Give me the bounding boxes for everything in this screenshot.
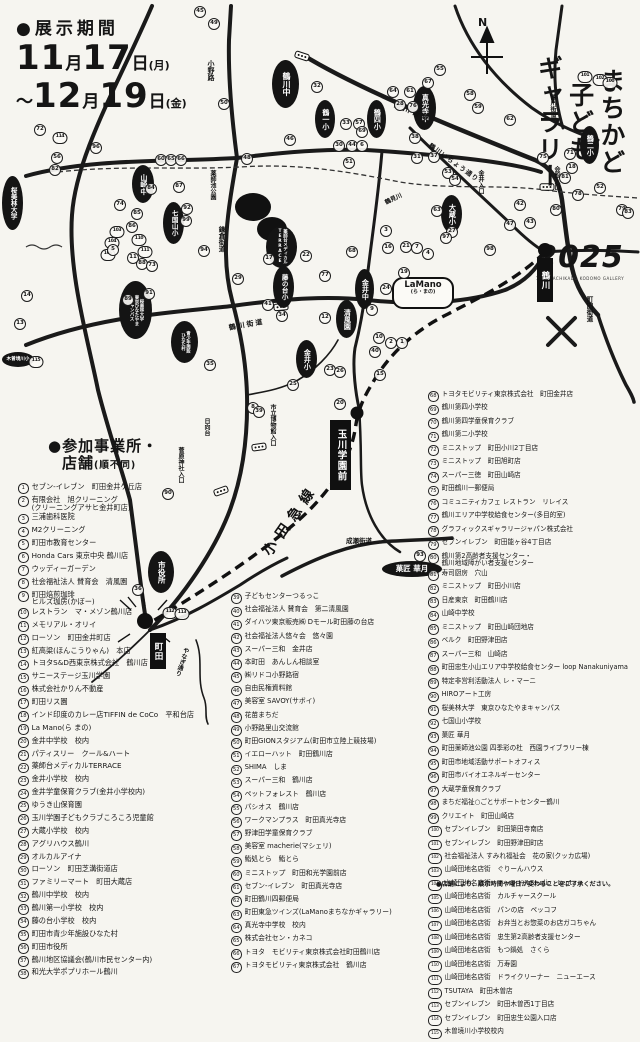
map-marker-63: 63	[431, 205, 443, 217]
road-label: 市立博物館入口	[268, 404, 277, 446]
compass-north-label: N	[478, 16, 487, 29]
list-item: 36町田市役所	[18, 943, 216, 954]
item-text: 町田市地域活動サポートオフィス	[442, 759, 541, 766]
list-item: 16株式会社かりん不動産	[18, 685, 216, 696]
list-item: 53スーパー三和 鶴川店	[231, 777, 427, 788]
item-text: 鶴川第四学童保育クラブ	[442, 418, 515, 425]
list-item: 70鶴川第四学童保育クラブ	[428, 418, 630, 429]
map-landmark-oval: 鶴四小	[367, 100, 386, 138]
list-item: 71鶴川第二小学校	[428, 431, 630, 442]
list-item: 31ファミリーマート 町田大蔵店	[18, 878, 216, 889]
list-item: 42社会福祉法人悠々会 悠々園	[231, 633, 427, 644]
road-label: 成瀬街道	[346, 535, 372, 545]
list-item: 60ミニストップ 町田和光学園前店	[231, 870, 427, 881]
item-text: スーパー三和 鶴川店	[245, 777, 313, 784]
list-item: 110山崎団地名店街 万寿園	[428, 961, 630, 972]
item-text: 鶴川地区協議会(鶴川市民センター内)	[32, 956, 153, 964]
map-marker-96: 96	[90, 142, 102, 154]
list-item: 47美容室 SAVOY(サボイ)	[231, 698, 427, 709]
item-text: セブンイレブン 町田野津田町店	[445, 840, 544, 847]
map-marker-73: 73	[146, 260, 158, 272]
item-text: サニーステージ玉川学園	[32, 672, 111, 680]
item-number-badge: 84	[428, 611, 439, 622]
item-text: 山崎団地名店街 カルチャースクール	[445, 893, 557, 900]
list-item: 11メモリアル・オリイ	[18, 621, 216, 632]
item-text: SHIMA しま	[245, 764, 287, 771]
item-number-badge: 21	[18, 750, 29, 761]
map-marker-72: 72	[34, 124, 46, 136]
map-marker-6: 6	[356, 140, 368, 152]
item-number-badge: 103	[428, 867, 442, 878]
item-number-badge: 61	[231, 883, 242, 894]
road-label: 薬師池公園	[208, 170, 217, 200]
item-text: 花苗まちだ	[245, 712, 279, 719]
list-item: 76コミュニティカフェ レストラン リレイス	[428, 499, 630, 510]
map-marker-7: 7	[411, 242, 423, 254]
item-number-badge: 12	[18, 634, 29, 645]
map-marker-46: 46	[284, 134, 296, 146]
map-marker-27: 27	[446, 226, 458, 238]
map-marker-88: 88	[136, 258, 148, 270]
item-text: 金井小学校 校内	[32, 775, 90, 783]
item-text: セブン-イレブン 町田金井ケ丘店	[32, 483, 142, 491]
map-marker-76: 76	[407, 101, 419, 113]
list-item: 84山崎中学校	[428, 610, 630, 621]
item-text: ミニストップ 町田小川店	[442, 583, 521, 590]
item-text: 町田リス園	[32, 698, 68, 706]
item-number-badge: 73	[428, 459, 439, 470]
station-label: 玉川学園前	[330, 420, 351, 490]
item-text: インド印度のカレー店TIFFIN de CoCo 平和台店	[32, 711, 194, 719]
item-text: 町田市教育センター	[32, 539, 97, 547]
item-number-badge: 80	[428, 553, 439, 564]
map-landmark-oval: 桜美林大学 東京ひなたやま キャンパス	[119, 281, 152, 339]
list-item: 55パシオス 鶴川店	[231, 804, 427, 815]
item-text: ミニストップ 町田山崎団地店	[442, 624, 534, 631]
road-label: 日向台	[202, 418, 211, 436]
list-item: 101セブンイレブン 町田野津田町店	[428, 840, 630, 851]
list-item: 3三浦歯科医院	[18, 513, 216, 524]
item-text: 有限会社 旭クリーニング (クリーニングアサヒ金井町店)	[32, 496, 131, 512]
map-marker-47: 47	[504, 219, 516, 231]
map-marker-37: 37	[428, 151, 440, 163]
list-item: 9町田焙煎珈琲 ヒルズ珈房(かぼー)	[18, 591, 216, 607]
event-title-year: 2025	[528, 240, 632, 275]
map-marker-4: 4	[422, 248, 434, 260]
item-text: 美容室 macherie(マシェリ)	[245, 843, 332, 850]
item-number-badge: 85	[428, 624, 439, 635]
list-item: 74スーパー三徳 町田山崎店	[428, 472, 630, 483]
item-text: 社会福祉法人悠々会 悠々園	[245, 633, 333, 640]
map-marker-40: 40	[369, 346, 381, 358]
item-number-badge: 53	[231, 778, 242, 789]
map-marker-57: 57	[353, 118, 365, 130]
item-text: 鶴川第一小学校 校内	[32, 904, 104, 912]
list-item: 81寿司厨房 穴山	[428, 570, 630, 581]
map-marker-31: 31	[411, 152, 423, 164]
map-marker-53: 53	[442, 167, 454, 179]
list-item: 96町田市バイオエネルギーセンター	[428, 772, 630, 783]
item-number-badge: 58	[231, 844, 242, 855]
item-text: 和光大学ポプリホール鶴川	[32, 968, 118, 976]
item-number-badge: 76	[428, 499, 439, 510]
map-marker-51: 51	[343, 157, 355, 169]
map-landmark-oval: 青少年施設 ひなた村	[171, 321, 198, 363]
item-number-badge: 7	[18, 565, 29, 576]
item-number-badge: 109	[428, 948, 442, 959]
venue-list-column-1: 1セブン-イレブン 町田金井ケ丘店2有限会社 旭クリーニング (クリーニングアサ…	[18, 483, 216, 981]
item-text: 山崎団地名店街 万寿園	[445, 961, 518, 968]
map-marker-99: 99	[180, 215, 192, 227]
map-marker-65: 65	[165, 154, 177, 166]
list-item: 107山崎団地名店街 お弁当とお惣菜のお店ガコちゃん	[428, 920, 630, 931]
item-text: 紅高粱(ほんこうりゃん) 本店	[32, 647, 131, 655]
list-item: 114セブンイレブン 町田忠生公園入口店	[428, 1015, 630, 1026]
item-text: 子どもセンターつるっこ	[245, 593, 320, 600]
item-number-badge: 35	[18, 930, 29, 941]
item-number-badge: 107	[428, 921, 442, 932]
list-item: 100セブンイレブン 町田簗田寺南店	[428, 826, 630, 837]
list-item: 115木曽境川小学校校内	[428, 1028, 630, 1039]
map-landmark-oval: 鶴一小	[315, 100, 335, 138]
item-number-badge: 52	[231, 765, 242, 776]
map-landmark-oval: 金井中	[355, 269, 374, 309]
item-text: 真光寺中学校 校内	[245, 922, 306, 929]
list-item: 44本町田 あんしん相談室	[231, 659, 427, 670]
map-marker-10: 10	[373, 332, 385, 344]
list-item: 73ミニストップ 町田旭町店	[428, 458, 630, 469]
map-marker-17: 17	[263, 253, 275, 265]
item-number-badge: 93	[428, 732, 439, 743]
item-number-badge: 25	[18, 801, 29, 812]
map-marker-87: 87	[173, 181, 185, 193]
map-marker-13: 13	[14, 318, 26, 330]
item-number-badge: 8	[18, 578, 29, 589]
item-number-badge: 91	[428, 705, 439, 716]
item-number-badge: 99	[428, 813, 439, 824]
item-number-badge: 33	[18, 904, 29, 915]
list-item: 103山崎団地名店街 ぐりーんハウス	[428, 866, 630, 877]
item-text: 町田薬師池公園 四季彩の杜 西園ライブラリー棟	[442, 745, 589, 752]
item-text: 特定非営利活動法人 レ・マーニ	[442, 678, 536, 685]
list-item: 62町田鶴川四郵便局	[231, 896, 427, 907]
road-label: 菅原神社入口	[176, 447, 185, 483]
item-text: スーパー三和 山崎店	[442, 651, 508, 658]
item-text: オルカルアイナ	[32, 853, 82, 861]
map-marker-22: 22	[300, 250, 312, 262]
list-item: 83日産東京 町田鶴川店	[428, 597, 630, 608]
item-number-badge: 87	[428, 651, 439, 662]
list-item: 66トヨタ モビリティ東京株式会社町田鶴川店	[231, 949, 427, 960]
list-item: 113セブンイレブン 町田木曽西1丁目店	[428, 1001, 630, 1012]
map-marker-1: 1	[396, 337, 408, 349]
item-number-badge: 83	[428, 597, 439, 608]
item-text: 寿司厨房 穴山	[442, 570, 488, 577]
map-marker-98: 98	[484, 244, 496, 256]
item-number-badge: 1	[18, 483, 29, 494]
list-item: 75町田鶴川一郵便局	[428, 485, 630, 496]
event-title: まちかど 子ども ギャラリー 2025 18th MACHIKADO KODOM…	[528, 6, 632, 281]
map-marker-55: 55	[434, 64, 446, 76]
map-marker-85: 85	[131, 208, 143, 220]
item-number-badge: 89	[428, 678, 439, 689]
item-number-badge: 45	[231, 672, 242, 683]
item-number-badge: 100	[428, 826, 442, 837]
item-number-badge: 3	[18, 514, 29, 525]
item-number-badge: 74	[428, 472, 439, 483]
list-item: 78グラフィックスギャラリージャパン株式会社	[428, 526, 630, 537]
item-text: 薬師台メディカルTERRACE	[32, 762, 122, 770]
item-number-badge: 34	[18, 917, 29, 928]
road-label: 町田街道	[584, 296, 594, 322]
item-text: ダイハツ東京販売㈱ Dモール町田藤の台店	[245, 619, 375, 626]
item-number-badge: 75	[428, 486, 439, 497]
map-marker-91: 91	[143, 288, 155, 300]
item-text: ペットフォレスト 鶴川店	[245, 791, 327, 798]
item-text: 町田市役所	[32, 943, 68, 951]
item-number-badge: 36	[18, 943, 29, 954]
item-number-badge: 44	[231, 659, 242, 670]
item-number-badge: 19	[18, 724, 29, 735]
list-item: 5町田市教育センター	[18, 539, 216, 550]
item-number-badge: 57	[231, 830, 242, 841]
item-text: ミニストップ 町田小川2丁目店	[442, 445, 539, 452]
list-item: 67トヨタモビリティ東京株式会社 鶴川店	[231, 962, 427, 973]
item-number-badge: 39	[231, 593, 242, 604]
list-item: 12ローソン 町田金井町店	[18, 634, 216, 645]
list-item: 41ダイハツ東京販売㈱ Dモール町田藤の台店	[231, 619, 427, 630]
item-text: ファミリーマート 町田大蔵店	[32, 878, 133, 886]
item-number-badge: 72	[428, 445, 439, 456]
item-number-badge: 106	[428, 907, 442, 918]
exhibition-period: ●展示期間 11月17日(月) ～12月19日(金)	[16, 14, 316, 114]
item-text: 鶴川中学校 校内	[32, 891, 90, 899]
list-item: 38和光大学ポプリホール鶴川	[18, 968, 216, 979]
map-marker-41: 41	[262, 299, 274, 311]
item-number-badge: 38	[18, 969, 29, 980]
list-item: 54ペットフォレスト 鶴川店	[231, 791, 427, 802]
item-text: セブンイレブン 町田簗田寺南店	[445, 826, 544, 833]
item-text: 野津田学童保育クラブ	[245, 830, 313, 837]
map-marker-35: 35	[204, 359, 216, 371]
map-landmark-oval: 桜美林大学	[2, 176, 23, 230]
road-label: 鶴見川	[383, 190, 403, 206]
item-text: 藤の台小学校 校内	[32, 917, 97, 925]
item-text: スーパー三徳 町田山崎店	[442, 472, 521, 479]
item-number-badge: 15	[18, 673, 29, 684]
item-text: 町田鶴川一郵便局	[442, 485, 495, 492]
map-marker-64: 64	[387, 86, 399, 98]
event-title-text: まちかど 子ども ギャラリー	[533, 6, 627, 238]
map-landmark-oval: 金井小	[296, 340, 317, 378]
item-text: 鶴川第2高齢者支援センター・ 鶴川地域障がい者支援センター	[442, 553, 534, 568]
map-marker-110: 110	[132, 234, 147, 246]
item-number-badge: 49	[231, 725, 242, 736]
list-item: 46自由民権資料館	[231, 685, 427, 696]
item-text: 町田東急ツインズ(LaManoまちなかギャラリー)	[245, 909, 392, 916]
item-number-badge: 6	[18, 552, 29, 563]
item-text: 自由民権資料館	[245, 685, 293, 692]
item-number-badge: 28	[18, 840, 29, 851]
map-landmark-oval: 清風園	[336, 300, 357, 338]
list-item: 108山崎団地名店街 忠生第2高齢者支援センター	[428, 934, 630, 945]
item-number-badge: 27	[18, 827, 29, 838]
item-number-badge: 40	[231, 607, 242, 618]
item-text: セブンイレブン 町田忠生公園入口店	[445, 1015, 557, 1022]
map-marker-5: 5	[107, 244, 119, 256]
item-text: 町田市青少年施設ひなた村	[32, 930, 118, 938]
item-number-badge: 77	[428, 513, 439, 524]
item-text: グラフィックスギャラリージャパン株式会社	[442, 526, 573, 533]
list-item: 48花苗まちだ	[231, 712, 427, 723]
item-number-badge: 71	[428, 432, 439, 443]
item-text: 小野路里山交流館	[245, 725, 299, 732]
map-marker-61: 61	[404, 86, 416, 98]
item-number-badge: 115	[428, 1029, 442, 1040]
item-number-badge: 101	[428, 840, 442, 851]
item-number-badge: 82	[428, 584, 439, 595]
list-item: 106山崎団地名店街 パンの店 ペッコフ	[428, 907, 630, 918]
item-number-badge: 114	[428, 1015, 442, 1026]
item-text: スーパー三和 金井店	[245, 646, 313, 653]
item-number-badge: 64	[231, 923, 242, 934]
item-text: TSUTAYA 町田木曽店	[445, 988, 513, 995]
item-number-badge: 56	[231, 817, 242, 828]
item-number-badge: 14	[18, 660, 29, 671]
list-heading-line2: 店舗(順不同)	[62, 455, 158, 472]
list-item: 72ミニストップ 町田小川2丁目店	[428, 445, 630, 456]
map-marker-115: 115	[29, 356, 44, 368]
list-item: 87スーパー三和 山崎店	[428, 651, 630, 662]
list-item: 61セブン-イレブン 町田真光寺店	[231, 883, 427, 894]
item-number-badge: 16	[18, 686, 29, 697]
item-number-badge: 5	[18, 539, 29, 550]
item-number-badge: 95	[428, 759, 439, 770]
list-item: 109山崎団地名店街 もつ鍋処 さくら	[428, 947, 630, 958]
item-number-badge: 13	[18, 647, 29, 658]
list-item: 1セブン-イレブン 町田金井ケ丘店	[18, 483, 216, 494]
item-text: ㈱リドコ小野路宿	[245, 672, 299, 679]
item-text: セブンイレブン 町田能ヶ谷4丁目店	[442, 539, 552, 546]
item-text: 町田GIONスタジアム(町田市立陸上競技場)	[245, 738, 377, 745]
item-text: 鶴川第二小学校	[442, 431, 488, 438]
item-text: 七国山小学校	[442, 718, 482, 725]
road-label: 鎌倉街道	[216, 226, 226, 252]
item-number-badge: 9	[18, 591, 29, 602]
exhibition-end-date: ～12月19日(金)	[16, 79, 316, 115]
map-marker-29: 29	[232, 273, 244, 285]
item-text: 町田焙煎珈琲 ヒルズ珈房(かぼー)	[32, 591, 95, 607]
map-marker-82: 82	[49, 164, 61, 176]
map-marker-60: 60	[155, 154, 167, 166]
item-number-badge: 94	[428, 746, 439, 757]
item-number-badge: 42	[231, 633, 242, 644]
list-item: 92七国山小学校	[428, 718, 630, 729]
map-marker-34: 34	[276, 310, 288, 322]
list-item: 7ウッディーガーデン	[18, 565, 216, 576]
item-text: パシオス 鶴川店	[245, 804, 299, 811]
item-text: トヨタ モビリティ東京株式会社町田鶴川店	[245, 949, 381, 956]
map-marker-58: 58	[464, 89, 476, 101]
item-text: セブン-イレブン 町田真光寺店	[245, 883, 343, 890]
road-label: 鶴川街道	[228, 317, 265, 333]
list-item: 8社会福祉法人 賛育会 清風園	[18, 578, 216, 589]
item-number-badge: 98	[428, 799, 439, 810]
item-number-badge: 41	[231, 620, 242, 631]
list-item: 94町田薬師池公園 四季彩の杜 西園ライブラリー棟	[428, 745, 630, 756]
list-item: 19La Mano(ら まの)	[18, 724, 216, 735]
list-item: 99クリエイト 町田山崎店	[428, 813, 630, 824]
item-text: ローソン 町田金井町店	[32, 634, 111, 642]
item-text: 山崎団地名店街 お弁当とお惣菜のお店ガコちゃん	[445, 920, 597, 927]
item-number-badge: 2	[18, 496, 29, 507]
map-marker-56: 56	[51, 152, 63, 164]
map-marker-111: 111	[138, 246, 153, 258]
item-number-badge: 32	[18, 892, 29, 903]
item-text: La Mano(ら まの)	[32, 724, 92, 732]
item-text: M2クリーニング	[32, 526, 86, 534]
item-text: ワークマンプラス 町田真光寺店	[245, 817, 347, 824]
list-item: 93菓匠 華月	[428, 732, 630, 743]
list-item: 91桜美林大学 東京ひなたやまキャンパス	[428, 705, 630, 716]
map-marker-48: 48	[241, 153, 253, 165]
map-marker-16: 16	[382, 242, 394, 254]
map-marker-21: 21	[400, 241, 412, 253]
list-item: 79セブンイレブン 町田能ヶ谷4丁目店	[428, 539, 630, 550]
map-marker-8: 8	[247, 402, 259, 414]
item-number-badge: 96	[428, 772, 439, 783]
item-number-badge: 113	[428, 1002, 442, 1013]
item-text: 日産東京 町田鶴川店	[442, 597, 508, 604]
item-number-badge: 65	[231, 936, 242, 947]
item-number-badge: 29	[18, 853, 29, 864]
item-number-badge: 54	[231, 791, 242, 802]
map-marker-38: 38	[409, 132, 421, 144]
item-text: HIROアート工房	[442, 691, 492, 698]
map-landmark-oval: 大蔵小	[441, 195, 462, 233]
map-marker-23: 23	[324, 364, 336, 376]
list-item: 86ベルク 町田野津田店	[428, 637, 630, 648]
item-text: 木曽境川小学校校内	[445, 1028, 504, 1035]
map-marker-114: 114	[53, 132, 68, 144]
list-item: 39子どもセンターつるっこ	[231, 593, 427, 604]
list-item: 97大蔵学童保育クラブ	[428, 786, 630, 797]
map-marker-74: 74	[114, 199, 126, 211]
item-number-badge: 112	[428, 988, 442, 999]
map-marker-77: 77	[319, 270, 331, 282]
list-item: 102社会福祉法人 すみれ福祉会 花の家(クッカ広場)	[428, 853, 630, 864]
road-label: 金井入口	[476, 170, 485, 194]
item-text: 株式会社かりん不動産	[32, 685, 104, 693]
list-item: 26玉川学園子どもクラブころころ児童館	[18, 814, 216, 825]
item-number-badge: 48	[231, 712, 242, 723]
item-text: トヨタモビリティ東京株式会社 鶴川店	[245, 962, 367, 969]
item-number-badge: 108	[428, 934, 442, 945]
exhibition-start-date: 11月17日(月)	[16, 41, 316, 77]
map-marker-92: 92	[181, 203, 193, 215]
list-item: 58美容室 macherie(マシェリ)	[231, 843, 427, 854]
list-item: 69鶴川第四小学校	[428, 404, 630, 415]
item-number-badge: 81	[428, 570, 439, 581]
list-item: 15サニーステージ玉川学園	[18, 672, 216, 683]
item-text: ベルク 町田野津田店	[442, 637, 508, 644]
item-number-badge: 30	[18, 866, 29, 877]
item-text: コミュニティカフェ レストラン リレイス	[442, 499, 569, 506]
item-text: 金井中学校 校内	[32, 737, 90, 745]
map-marker-2: 2	[385, 337, 397, 349]
item-text: 株式会社セン・カネコ	[245, 935, 313, 942]
venue-list-column-3: 68トヨタモビリティ東京株式会社 町田金井店69鶴川第四小学校70鶴川第四学童保…	[428, 391, 630, 1042]
